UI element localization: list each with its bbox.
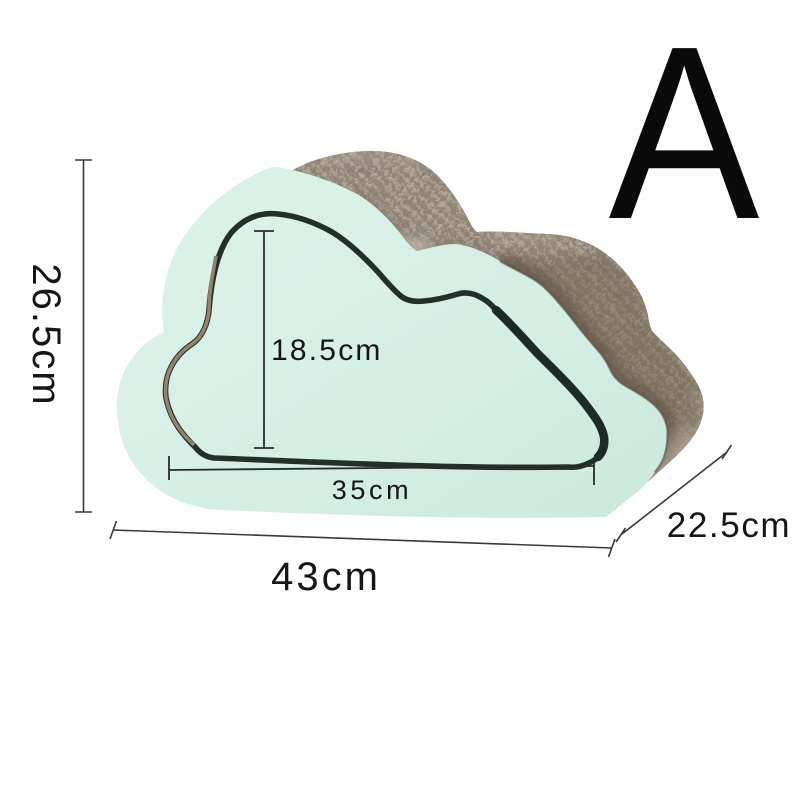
svg-text:43cm: 43cm [271,555,381,599]
svg-text:35cm: 35cm [332,475,412,505]
svg-text:A: A [609,0,760,271]
svg-text:18.5cm: 18.5cm [271,334,383,367]
svg-text:22.5cm: 22.5cm [667,506,791,545]
svg-text:26.5cm: 26.5cm [24,263,68,406]
